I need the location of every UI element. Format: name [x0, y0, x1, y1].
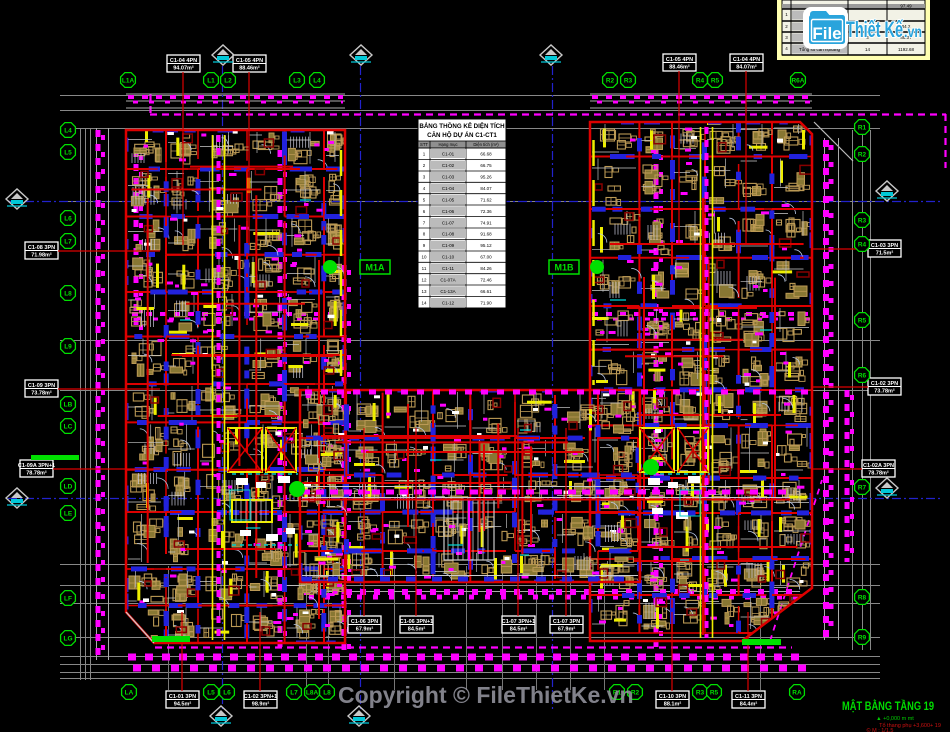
svg-text:LA: LA: [125, 689, 134, 696]
svg-text:C1-11 3PN: C1-11 3PN: [735, 694, 762, 700]
svg-text:94.07m²: 94.07m²: [173, 65, 194, 72]
svg-text:14: 14: [421, 300, 427, 305]
svg-text:L7: L7: [290, 689, 298, 696]
svg-text:STT: STT: [420, 142, 428, 147]
svg-text:L2: L2: [224, 77, 232, 84]
svg-text:11: 11: [422, 266, 427, 271]
svg-text:10: 10: [421, 255, 427, 260]
svg-text:LE: LE: [64, 510, 73, 517]
svg-text:78.78m²: 78.78m²: [26, 470, 47, 477]
svg-text:C1-05 4PN: C1-05 4PN: [236, 58, 263, 64]
svg-text:L4: L4: [313, 77, 321, 84]
svg-text:L1: L1: [207, 77, 215, 84]
svg-text:Diện tích (m²): Diện tích (m²): [473, 142, 499, 147]
svg-text:C1-01 3PN: C1-01 3PN: [169, 694, 196, 700]
svg-text:LD: LD: [64, 483, 73, 490]
svg-text:C1-02 3PN: C1-02 3PN: [871, 381, 898, 387]
svg-text:L6: L6: [64, 215, 72, 222]
svg-text:1192.68: 1192.68: [898, 47, 914, 52]
svg-text:C1-03 3PN: C1-03 3PN: [871, 243, 898, 249]
svg-text:C1-07 3PN: C1-07 3PN: [553, 619, 580, 625]
svg-text:C1-10 3PN: C1-10 3PN: [659, 694, 686, 700]
svg-text:C1-05: C1-05: [442, 197, 455, 202]
svg-text:C1-02: C1-02: [442, 163, 455, 168]
svg-text:Hạng mục: Hạng mục: [438, 142, 457, 147]
svg-text:C1-03: C1-03: [442, 175, 455, 180]
svg-text:Copyright © FileThietKe.vn: Copyright © FileThietKe.vn: [338, 682, 634, 708]
svg-text:R3: R3: [858, 217, 867, 224]
svg-text:14: 14: [865, 47, 871, 52]
svg-text:C1-12: C1-12: [442, 300, 455, 305]
svg-text:71.62: 71.62: [480, 197, 492, 202]
svg-text:File: File: [812, 24, 841, 43]
svg-text:73.78m²: 73.78m²: [874, 388, 895, 395]
svg-text:94.5m²: 94.5m²: [174, 701, 192, 708]
svg-text:R2: R2: [858, 151, 867, 158]
svg-text:84.5m²: 84.5m²: [510, 626, 528, 633]
svg-text:84.07: 84.07: [480, 186, 492, 191]
svg-text:C1-04: C1-04: [442, 186, 455, 191]
svg-text:66.61: 66.61: [480, 289, 492, 294]
svg-text:66.68: 66.68: [480, 152, 492, 157]
svg-text:C1-07: C1-07: [442, 220, 455, 225]
svg-text:73.78m²: 73.78m²: [31, 390, 52, 397]
svg-text:71.90: 71.90: [480, 300, 492, 305]
svg-text:M1B: M1B: [554, 263, 574, 273]
svg-text:12: 12: [421, 277, 427, 282]
svg-text:Thiết Kế: Thiết Kế: [846, 17, 903, 42]
svg-text:71.98m²: 71.98m²: [31, 252, 52, 259]
svg-text:98.9m²: 98.9m²: [252, 701, 270, 708]
svg-text:LF: LF: [64, 595, 72, 602]
svg-text:C1-13A: C1-13A: [440, 289, 455, 294]
svg-text:BẢNG THỒNG KÊ DIỆN TÍCH: BẢNG THỒNG KÊ DIỆN TÍCH: [419, 122, 505, 130]
svg-text:C1-09 3PN: C1-09 3PN: [28, 383, 55, 389]
svg-text:C1-02A 3PN: C1-02A 3PN: [863, 463, 894, 469]
svg-text:LC: LC: [64, 423, 73, 430]
svg-text:C1-06 3PN: C1-06 3PN: [351, 619, 378, 625]
svg-text:L9: L9: [64, 343, 72, 350]
svg-text:.vn: .vn: [904, 24, 922, 41]
svg-text:L6: L6: [223, 689, 231, 696]
svg-text:C1-05 4PN: C1-05 4PN: [666, 57, 693, 63]
svg-text:© M : 1/1.5: © M : 1/1.5: [867, 727, 894, 732]
svg-text:C1-04 4PN: C1-04 4PN: [733, 57, 760, 63]
svg-text:67.9m²: 67.9m²: [356, 626, 374, 633]
svg-text:C1-02 3PN+1: C1-02 3PN+1: [244, 694, 277, 700]
svg-text:LG: LG: [63, 635, 72, 642]
svg-text:74.91: 74.91: [480, 220, 492, 225]
svg-text:L8: L8: [323, 689, 331, 696]
svg-text:C1-09A 3PN+1: C1-09A 3PN+1: [18, 463, 55, 469]
svg-text:84.07m²: 84.07m²: [736, 64, 757, 71]
svg-text:66.75: 66.75: [480, 163, 492, 168]
svg-text:R4: R4: [696, 77, 705, 84]
svg-text:95.26: 95.26: [480, 175, 492, 180]
svg-text:84.26: 84.26: [480, 266, 492, 271]
svg-text:R1: R1: [858, 124, 867, 131]
svg-text:95.12: 95.12: [480, 243, 492, 248]
svg-text:C1-06: C1-06: [442, 209, 455, 214]
svg-text:R5: R5: [858, 317, 867, 324]
svg-text:C1-10: C1-10: [442, 255, 455, 260]
svg-text:C1-07A: C1-07A: [440, 277, 455, 282]
svg-text:CĂN HỘ DỰ ÁN C1-CT1: CĂN HỘ DỰ ÁN C1-CT1: [427, 131, 497, 139]
svg-text:C1-04 4PN: C1-04 4PN: [170, 58, 197, 64]
svg-text:MẬT BẰNG TẦNG 19: MẬT BẰNG TẦNG 19: [842, 700, 934, 713]
svg-text:M1A: M1A: [365, 263, 385, 273]
svg-text:78.78m²: 78.78m²: [868, 470, 889, 477]
svg-text:R7: R7: [858, 484, 867, 491]
svg-text:67.9m²: 67.9m²: [558, 626, 576, 633]
svg-text:R6: R6: [858, 372, 867, 379]
svg-text:84.5m²: 84.5m²: [408, 626, 426, 633]
svg-text:L7: L7: [64, 238, 72, 245]
svg-text:13: 13: [421, 289, 427, 294]
svg-text:L3: L3: [293, 77, 301, 84]
svg-text:R2: R2: [606, 77, 615, 84]
svg-text:▲ +0,000 m mt: ▲ +0,000 m mt: [876, 716, 914, 722]
svg-text:R4: R4: [858, 241, 867, 248]
svg-text:72.36: 72.36: [480, 209, 492, 214]
svg-text:C1-08 3PN: C1-08 3PN: [28, 245, 55, 251]
svg-text:88.1m²: 88.1m²: [664, 701, 682, 708]
svg-text:84.4m²: 84.4m²: [740, 701, 758, 708]
svg-text:C1-06 3PN+1: C1-06 3PN+1: [400, 619, 433, 625]
svg-text:L8: L8: [64, 290, 72, 297]
svg-text:C1-07 3PN+1: C1-07 3PN+1: [502, 619, 535, 625]
svg-text:88.46m²: 88.46m²: [239, 65, 260, 72]
svg-text:R3: R3: [696, 689, 705, 696]
svg-text:C1-09: C1-09: [442, 243, 455, 248]
svg-text:C1-08: C1-08: [442, 232, 455, 237]
svg-text:L4: L4: [64, 127, 72, 134]
svg-text:C1-11: C1-11: [442, 266, 454, 271]
svg-text:LB: LB: [64, 401, 73, 408]
svg-text:R3: R3: [624, 77, 633, 84]
svg-text:L8A: L8A: [306, 689, 319, 696]
svg-text:88.46m²: 88.46m²: [669, 64, 690, 71]
svg-text:97.49: 97.49: [900, 4, 912, 9]
svg-text:L5: L5: [64, 149, 72, 156]
svg-text:R8: R8: [858, 594, 867, 601]
svg-text:L1A: L1A: [122, 77, 135, 84]
svg-text:91.68: 91.68: [480, 232, 492, 237]
svg-text:67.00: 67.00: [480, 255, 492, 260]
svg-text:RA: RA: [792, 689, 802, 696]
svg-text:72.46: 72.46: [480, 277, 492, 282]
svg-text:R9: R9: [858, 634, 867, 641]
svg-text:L5: L5: [207, 689, 215, 696]
svg-text:C1-01: C1-01: [442, 152, 455, 157]
svg-text:R6A: R6A: [791, 77, 804, 84]
svg-text:R5: R5: [711, 77, 720, 84]
svg-text:R5: R5: [710, 689, 719, 696]
svg-text:71.5m²: 71.5m²: [876, 250, 894, 257]
